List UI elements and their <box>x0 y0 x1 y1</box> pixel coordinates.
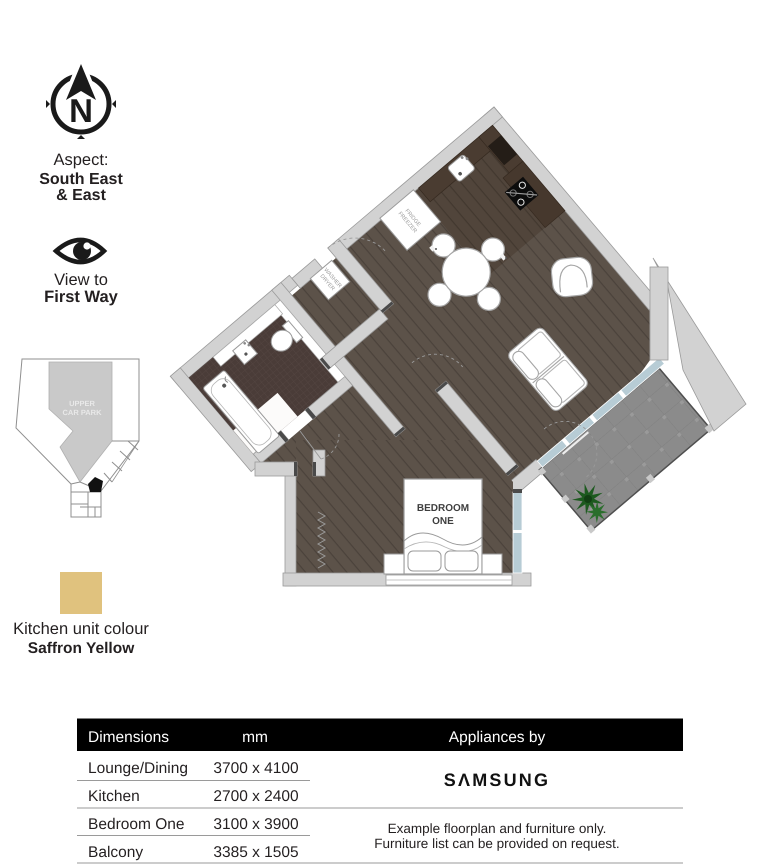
svg-text:South East: South East <box>39 171 123 188</box>
svg-text:Dimensions: Dimensions <box>88 729 169 746</box>
svg-text:Lounge/Dining: Lounge/Dining <box>88 760 188 777</box>
svg-text:View to: View to <box>54 271 108 289</box>
svg-text:Kitchen: Kitchen <box>88 788 140 805</box>
svg-text:BEDROOM: BEDROOM <box>417 503 469 514</box>
svg-text:Bedroom One: Bedroom One <box>88 816 185 833</box>
svg-text:Balcony: Balcony <box>88 844 143 861</box>
svg-text:& East: & East <box>56 187 106 204</box>
svg-text:Appliances by: Appliances by <box>449 729 546 746</box>
svg-text:First Way: First Way <box>44 288 118 306</box>
svg-text:Kitchen unit colour: Kitchen unit colour <box>13 620 149 638</box>
svg-text:3100 x 3900: 3100 x 3900 <box>213 816 299 833</box>
svg-text:CAR PARK: CAR PARK <box>62 408 102 417</box>
svg-text:Furniture list can be provided: Furniture list can be provided on reques… <box>374 836 619 851</box>
svg-text:mm: mm <box>242 729 268 746</box>
svg-text:3385 x 1505: 3385 x 1505 <box>213 844 298 861</box>
svg-text:Example floorplan and furnitur: Example floorplan and furniture only. <box>388 821 607 836</box>
svg-text:Aspect:: Aspect: <box>53 151 108 169</box>
svg-text:Saffron Yellow: Saffron Yellow <box>28 640 135 657</box>
svg-text:SΛMSUNG: SΛMSUNG <box>444 770 550 790</box>
svg-text:2700 x 2400: 2700 x 2400 <box>213 788 299 805</box>
svg-text:UPPER: UPPER <box>69 399 95 408</box>
svg-text:3700 x 4100: 3700 x 4100 <box>213 760 299 777</box>
svg-text:N: N <box>69 92 93 129</box>
svg-text:ONE: ONE <box>432 516 454 527</box>
